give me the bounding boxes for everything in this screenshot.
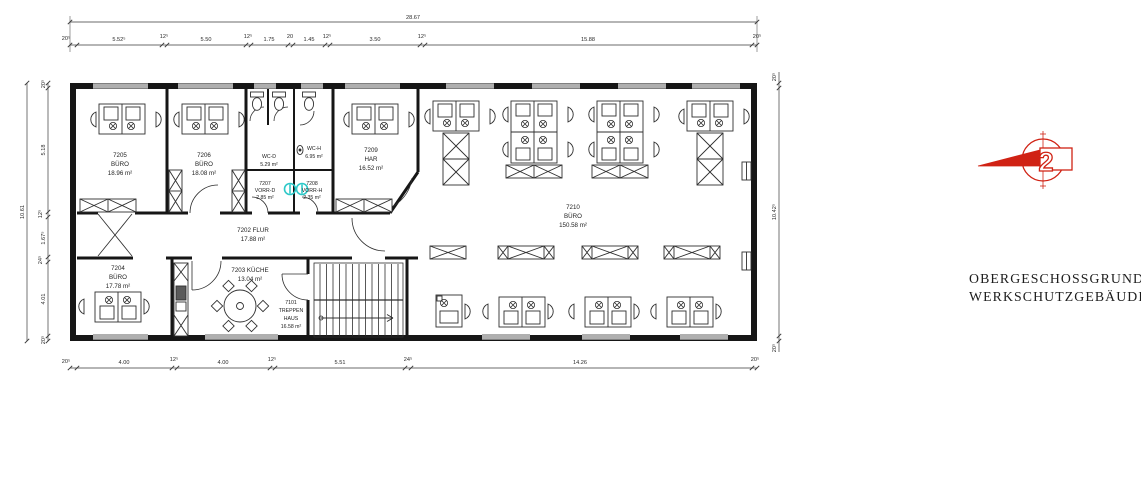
cabinet-symbol bbox=[169, 170, 182, 212]
room-7101-treppenhaus: 7101 TREPPEN HAUS 16.58 m² bbox=[279, 300, 304, 330]
room-area: 16.58 m² bbox=[281, 324, 302, 330]
dimension-left-total: 10.61 bbox=[20, 81, 29, 343]
room-area: 13.04 m² bbox=[238, 276, 262, 283]
desk-symbol bbox=[569, 297, 639, 327]
dimension-bottom-chain: 20⁵ 4.00 12⁵ 4.00 12⁵ 5.51 24⁵ 14.26 20⁵ bbox=[62, 356, 760, 370]
room-number: 7209 bbox=[364, 147, 378, 154]
cabinet-symbol bbox=[336, 199, 392, 212]
room-number: 7203 KÜCHE bbox=[231, 267, 268, 274]
dim-label: 15.88 bbox=[581, 37, 595, 43]
cabinet-symbol bbox=[506, 165, 562, 178]
room-area: 17.78 m² bbox=[106, 283, 130, 290]
dimension-top-total: 28.67 bbox=[68, 15, 759, 52]
dim-label: 3.50 bbox=[370, 37, 381, 43]
floor-plan-drawing: 28.67 20⁵ 5.52⁵ 12⁵ 5.50 12⁵ 1.75 20 1.4… bbox=[0, 0, 1141, 480]
dim-label: 12⁵ bbox=[37, 210, 44, 219]
room-name: BÜRO bbox=[564, 213, 582, 220]
room-area: 18.96 m² bbox=[108, 170, 132, 177]
room-number: 7210 bbox=[566, 204, 580, 211]
desk-symbol bbox=[589, 101, 659, 163]
toilet-symbol bbox=[303, 92, 316, 110]
room-name: HAR bbox=[364, 156, 378, 163]
desk-symbol bbox=[79, 292, 149, 322]
dim-label: 24⁵ bbox=[37, 256, 44, 265]
room-name: TREPPEN bbox=[279, 308, 304, 314]
dim-label: 12⁵ bbox=[323, 33, 332, 40]
room-area: 18.08 m² bbox=[192, 170, 216, 177]
kitchen-table bbox=[211, 280, 268, 331]
room-name: BÜRO bbox=[109, 274, 127, 281]
needle-icon bbox=[978, 150, 1040, 166]
dim-label: 20⁵ bbox=[751, 356, 760, 363]
dim-label: 12⁵ bbox=[268, 356, 277, 363]
room-area: 2.85 m² bbox=[256, 195, 274, 201]
cabinet-symbol bbox=[80, 199, 136, 212]
dim-label: 20 bbox=[287, 34, 293, 40]
cabinet-symbol bbox=[697, 133, 723, 185]
dim-label: 5.18 bbox=[41, 145, 47, 156]
dim-label: 1.67⁵ bbox=[40, 231, 47, 244]
room-7202-flur: 7202 FLUR 17.88 m² bbox=[237, 227, 269, 243]
room-name: BÜRO bbox=[111, 161, 129, 168]
cabinet-symbol bbox=[498, 246, 554, 259]
room-name: BÜRO bbox=[195, 161, 213, 168]
dim-label: 4.00 bbox=[218, 360, 229, 366]
dimension-left-chain: 20⁵ 5.18 12⁵ 1.67⁵ 24⁵ 4.01 20⁵ bbox=[37, 80, 50, 345]
desk-symbol bbox=[679, 101, 749, 131]
dim-label: 20⁵ bbox=[753, 33, 762, 40]
room-7210: 7210 BÜRO 150.58 m² bbox=[559, 204, 587, 229]
dim-label: 5.52⁵ bbox=[112, 36, 125, 43]
radiator-symbol bbox=[742, 162, 751, 270]
room-number: 7205 bbox=[113, 152, 127, 159]
dim-label: 20⁵ bbox=[62, 358, 71, 365]
dim-label: 12⁵ bbox=[244, 33, 253, 40]
room-name: WC-H bbox=[307, 146, 321, 152]
room-wc-h: WC-H 6.95 m² bbox=[305, 146, 323, 160]
cabinet-symbol bbox=[664, 246, 720, 259]
room-7206: 7206 BÜRO 18.08 m² bbox=[192, 152, 216, 177]
room-7205: 7205 BÜRO 18.96 m² bbox=[108, 152, 132, 177]
drawing-title-line1: OBERGESCHOSSGRUNDRISS bbox=[969, 271, 1141, 286]
room-7203-kueche: 7203 KÜCHE 13.04 m² bbox=[231, 267, 268, 283]
floor-indicator-logo: 2 bbox=[978, 131, 1072, 189]
dim-label: 10.61 bbox=[20, 205, 26, 219]
cabinet-symbol bbox=[592, 165, 648, 178]
room-wc-d: WC-D 5.29 m² bbox=[260, 154, 278, 168]
floor-plan-sheet: 28.67 20⁵ 5.52⁵ 12⁵ 5.50 12⁵ 1.75 20 1.4… bbox=[0, 0, 1141, 480]
kitchen-counter bbox=[174, 263, 188, 336]
stairs-symbol bbox=[314, 263, 403, 337]
dim-label: 28.67 bbox=[406, 15, 420, 21]
room-area: 5.29 m² bbox=[260, 162, 278, 168]
desk-symbol bbox=[425, 101, 495, 131]
room-number: 7202 FLUR bbox=[237, 227, 269, 234]
desk-symbol bbox=[436, 295, 470, 327]
desk-symbol bbox=[174, 104, 244, 134]
dim-label: 20⁵ bbox=[771, 73, 778, 82]
desk-symbol bbox=[503, 101, 573, 163]
room-7204: 7204 BÜRO 17.78 m² bbox=[106, 265, 130, 290]
cabinet-symbol bbox=[443, 133, 469, 185]
dim-label: 20⁵ bbox=[40, 80, 47, 89]
desk-symbol bbox=[483, 297, 553, 327]
cabinet-symbol bbox=[232, 170, 245, 212]
dim-label: 1.75 bbox=[264, 37, 275, 43]
cabinet-symbol bbox=[582, 246, 638, 259]
dimension-right-chain: 20⁵ 10.42⁵ 20⁵ bbox=[771, 72, 781, 352]
urinal-symbol bbox=[297, 145, 303, 154]
dim-label: 24⁵ bbox=[404, 356, 413, 363]
room-name: HAUS bbox=[284, 316, 299, 322]
drawing-title-line2: WERKSCHUTZGEBÄUDE bbox=[969, 288, 1141, 304]
room-area: 150.58 m² bbox=[559, 222, 587, 229]
room-area: 6.95 m² bbox=[305, 154, 323, 160]
dim-label: 12⁵ bbox=[170, 356, 179, 363]
floor-number-label: 2 bbox=[1038, 147, 1053, 177]
room-name: WC-D bbox=[262, 154, 276, 160]
dim-label: 5.51 bbox=[335, 360, 346, 366]
dim-label: 14.26 bbox=[573, 360, 587, 366]
room-7209: 7209 HAR 16.52 m² bbox=[359, 147, 383, 172]
room-name: VORR-D bbox=[255, 188, 276, 194]
desk-symbol bbox=[91, 104, 161, 134]
dim-label: 20⁵ bbox=[62, 35, 71, 42]
dim-label: 10.42⁵ bbox=[771, 204, 778, 220]
dimension-top-chain: 20⁵ 5.52⁵ 12⁵ 5.50 12⁵ 1.75 20 1.45 12⁵ … bbox=[62, 33, 762, 47]
dim-label: 4.00 bbox=[119, 360, 130, 366]
room-area: 16.52 m² bbox=[359, 165, 383, 172]
room-7207: 7207 VORR-D 2.85 m² bbox=[255, 181, 276, 201]
room-area: 2.35 m² bbox=[303, 195, 321, 201]
room-number: 7101 bbox=[285, 300, 297, 306]
desk-symbol bbox=[651, 297, 721, 327]
dim-label: 20⁵ bbox=[771, 344, 778, 353]
cabinet-symbol bbox=[430, 246, 466, 259]
dim-label: 4.01 bbox=[41, 294, 47, 305]
room-number: 7204 bbox=[111, 265, 125, 272]
dim-label: 5.50 bbox=[201, 37, 212, 43]
room-number: 7206 bbox=[197, 152, 211, 159]
dim-label: 1.45 bbox=[304, 37, 315, 43]
dim-label: 12⁵ bbox=[160, 33, 169, 40]
room-area: 17.88 m² bbox=[241, 236, 265, 243]
dim-label: 20⁵ bbox=[40, 336, 47, 345]
dim-label: 12⁵ bbox=[418, 33, 427, 40]
desk-symbol bbox=[344, 104, 414, 134]
drawing-title-block: OBERGESCHOSSGRUNDRISS WERKSCHUTZGEBÄUDE bbox=[969, 271, 1141, 304]
room-number: 7207 bbox=[259, 181, 271, 187]
room-name: VORR-H bbox=[302, 188, 323, 194]
room-number: 7208 bbox=[306, 181, 318, 187]
